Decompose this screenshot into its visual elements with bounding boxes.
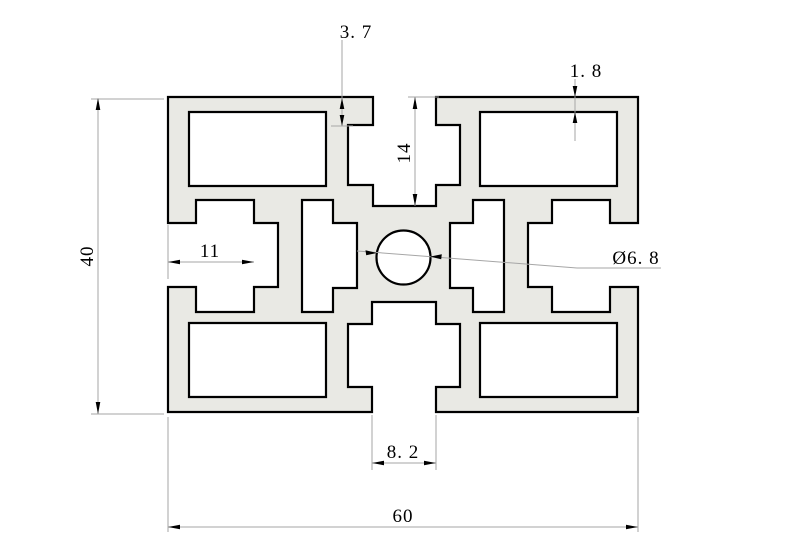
leader-line	[357, 251, 577, 268]
arrowhead-right	[242, 260, 254, 265]
dimension-width-60: 60	[168, 417, 638, 532]
arrowhead-up	[573, 112, 578, 123]
arrowhead-up	[413, 97, 418, 109]
dimension-label-40: 40	[77, 246, 98, 267]
arrowhead-right	[424, 461, 436, 466]
dimension-label-11: 11	[200, 241, 220, 262]
arrowhead-up	[96, 98, 101, 110]
profile-drawing-svg: 40 60 8. 2 11 14 3.	[0, 0, 804, 557]
dimension-slot-opening-8-2: 8. 2	[372, 415, 436, 470]
dimension-side-slot-11: 11	[168, 225, 254, 279]
arrowhead-down	[573, 86, 578, 97]
technical-drawing-page: 40 60 8. 2 11 14 3.	[0, 0, 804, 557]
dimension-label-1-8: 1. 8	[570, 61, 603, 82]
dimension-slot-depth-14: 14	[394, 97, 439, 206]
dimension-label-8-2: 8. 2	[387, 442, 420, 463]
arrowhead-left	[168, 525, 180, 530]
arrowhead-left	[168, 260, 180, 265]
dimension-label-60: 60	[393, 506, 414, 527]
arrowhead-left	[372, 461, 384, 466]
arrowhead-down	[413, 194, 418, 206]
dimension-label-14: 14	[394, 143, 415, 164]
arrowhead-down	[96, 402, 101, 414]
dimension-label-diameter-6-8: Ø6. 8	[612, 248, 659, 269]
arrowhead-right	[626, 525, 638, 530]
dimension-label-3-7: 3. 7	[340, 22, 373, 43]
dimension-height-40: 40	[77, 98, 164, 414]
